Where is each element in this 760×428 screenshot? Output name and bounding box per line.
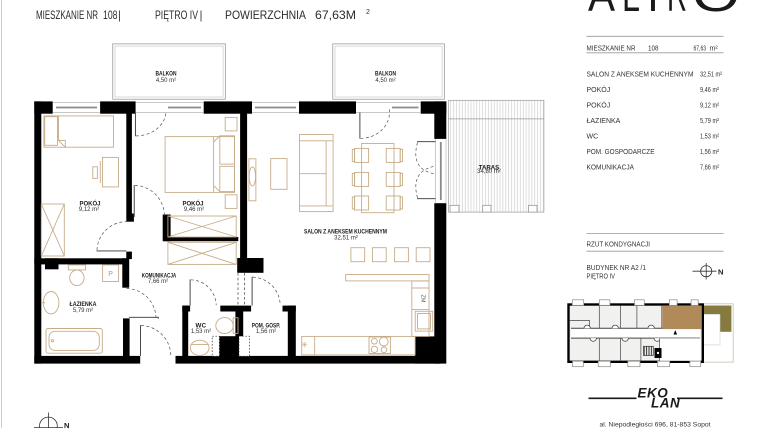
svg-text:9,46 m²: 9,46 m² bbox=[700, 85, 719, 94]
svg-text:POM. GOSPODARCZE: POM. GOSPODARCZE bbox=[587, 147, 655, 156]
svg-text:7,66 m²: 7,66 m² bbox=[148, 279, 168, 285]
svg-text:5,79 m²: 5,79 m² bbox=[73, 308, 93, 314]
svg-text:ZM: ZM bbox=[420, 295, 426, 303]
svg-text:KOMUNIKACJA: KOMUNIKACJA bbox=[587, 163, 635, 172]
svg-text:9,46 m²: 9,46 m² bbox=[184, 207, 204, 213]
svg-text:✳: ✳ bbox=[301, 340, 308, 349]
svg-text:N: N bbox=[718, 268, 723, 277]
svg-text:RZUT KONDYGNACJI: RZUT KONDYGNACJI bbox=[587, 240, 651, 249]
svg-text:N: N bbox=[64, 421, 69, 428]
svg-text:LAN: LAN bbox=[651, 396, 680, 411]
svg-text:POWIERZCHNIA: POWIERZCHNIA bbox=[225, 9, 306, 22]
svg-text:SALON Z ANEKSEM KUCHENNYM: SALON Z ANEKSEM KUCHENNYM bbox=[304, 228, 387, 235]
svg-text:34,80 m²: 34,80 m² bbox=[477, 169, 501, 175]
svg-text:BALKON: BALKON bbox=[375, 72, 396, 78]
svg-text:R: R bbox=[667, 0, 687, 21]
svg-text:9,12 m²: 9,12 m² bbox=[79, 207, 99, 213]
svg-text:67,63: 67,63 bbox=[694, 45, 707, 52]
svg-text:L: L bbox=[622, 0, 640, 21]
svg-text:32,51 m²: 32,51 m² bbox=[700, 70, 722, 79]
svg-text:67,63M: 67,63M bbox=[315, 9, 356, 22]
svg-text:5,79 m²: 5,79 m² bbox=[700, 116, 719, 125]
svg-text:1,53 m²: 1,53 m² bbox=[700, 132, 719, 141]
svg-text:1,56 m²: 1,56 m² bbox=[256, 329, 276, 335]
svg-text:WC: WC bbox=[587, 134, 599, 141]
svg-text:4,50 m²: 4,50 m² bbox=[156, 78, 176, 84]
svg-text:BALKON: BALKON bbox=[156, 72, 177, 78]
svg-text:4,50 m²: 4,50 m² bbox=[375, 78, 395, 84]
svg-text:MIESZKANIE NR: MIESZKANIE NR bbox=[36, 9, 98, 22]
svg-text:|: | bbox=[118, 9, 121, 22]
svg-text:2: 2 bbox=[366, 9, 370, 16]
svg-text:1,56 m²: 1,56 m² bbox=[700, 147, 719, 156]
svg-text:32,51 m²: 32,51 m² bbox=[334, 235, 358, 241]
svg-text:O: O bbox=[692, 0, 740, 21]
svg-text:PIĘTRO IV: PIĘTRO IV bbox=[587, 272, 616, 281]
svg-text:POKÓJ: POKÓJ bbox=[587, 101, 611, 110]
svg-text:SALON Z ANEKSEM KUCHENNYM: SALON Z ANEKSEM KUCHENNYM bbox=[587, 70, 694, 79]
svg-text:7,66 m²: 7,66 m² bbox=[700, 163, 719, 172]
svg-text:T: T bbox=[640, 0, 666, 21]
svg-text:al. Niepodległości 696, 81-853: al. Niepodległości 696, 81-853 Sopot bbox=[599, 422, 710, 428]
svg-text:A: A bbox=[588, 0, 615, 21]
svg-text:|: | bbox=[200, 9, 203, 22]
svg-text:MIESZKANIE NR: MIESZKANIE NR bbox=[587, 45, 636, 52]
svg-text:P: P bbox=[108, 271, 113, 278]
svg-text:9,12 m²: 9,12 m² bbox=[700, 101, 719, 110]
svg-text:POKÓJ: POKÓJ bbox=[587, 85, 611, 94]
svg-text:1,53 m²: 1,53 m² bbox=[191, 329, 211, 335]
svg-text:108: 108 bbox=[648, 45, 659, 52]
svg-text:m²: m² bbox=[710, 45, 719, 52]
svg-text:PIĘTRO IV: PIĘTRO IV bbox=[155, 9, 198, 22]
svg-text:108: 108 bbox=[103, 9, 118, 22]
svg-text:ŁAZIENKA: ŁAZIENKA bbox=[587, 118, 621, 125]
